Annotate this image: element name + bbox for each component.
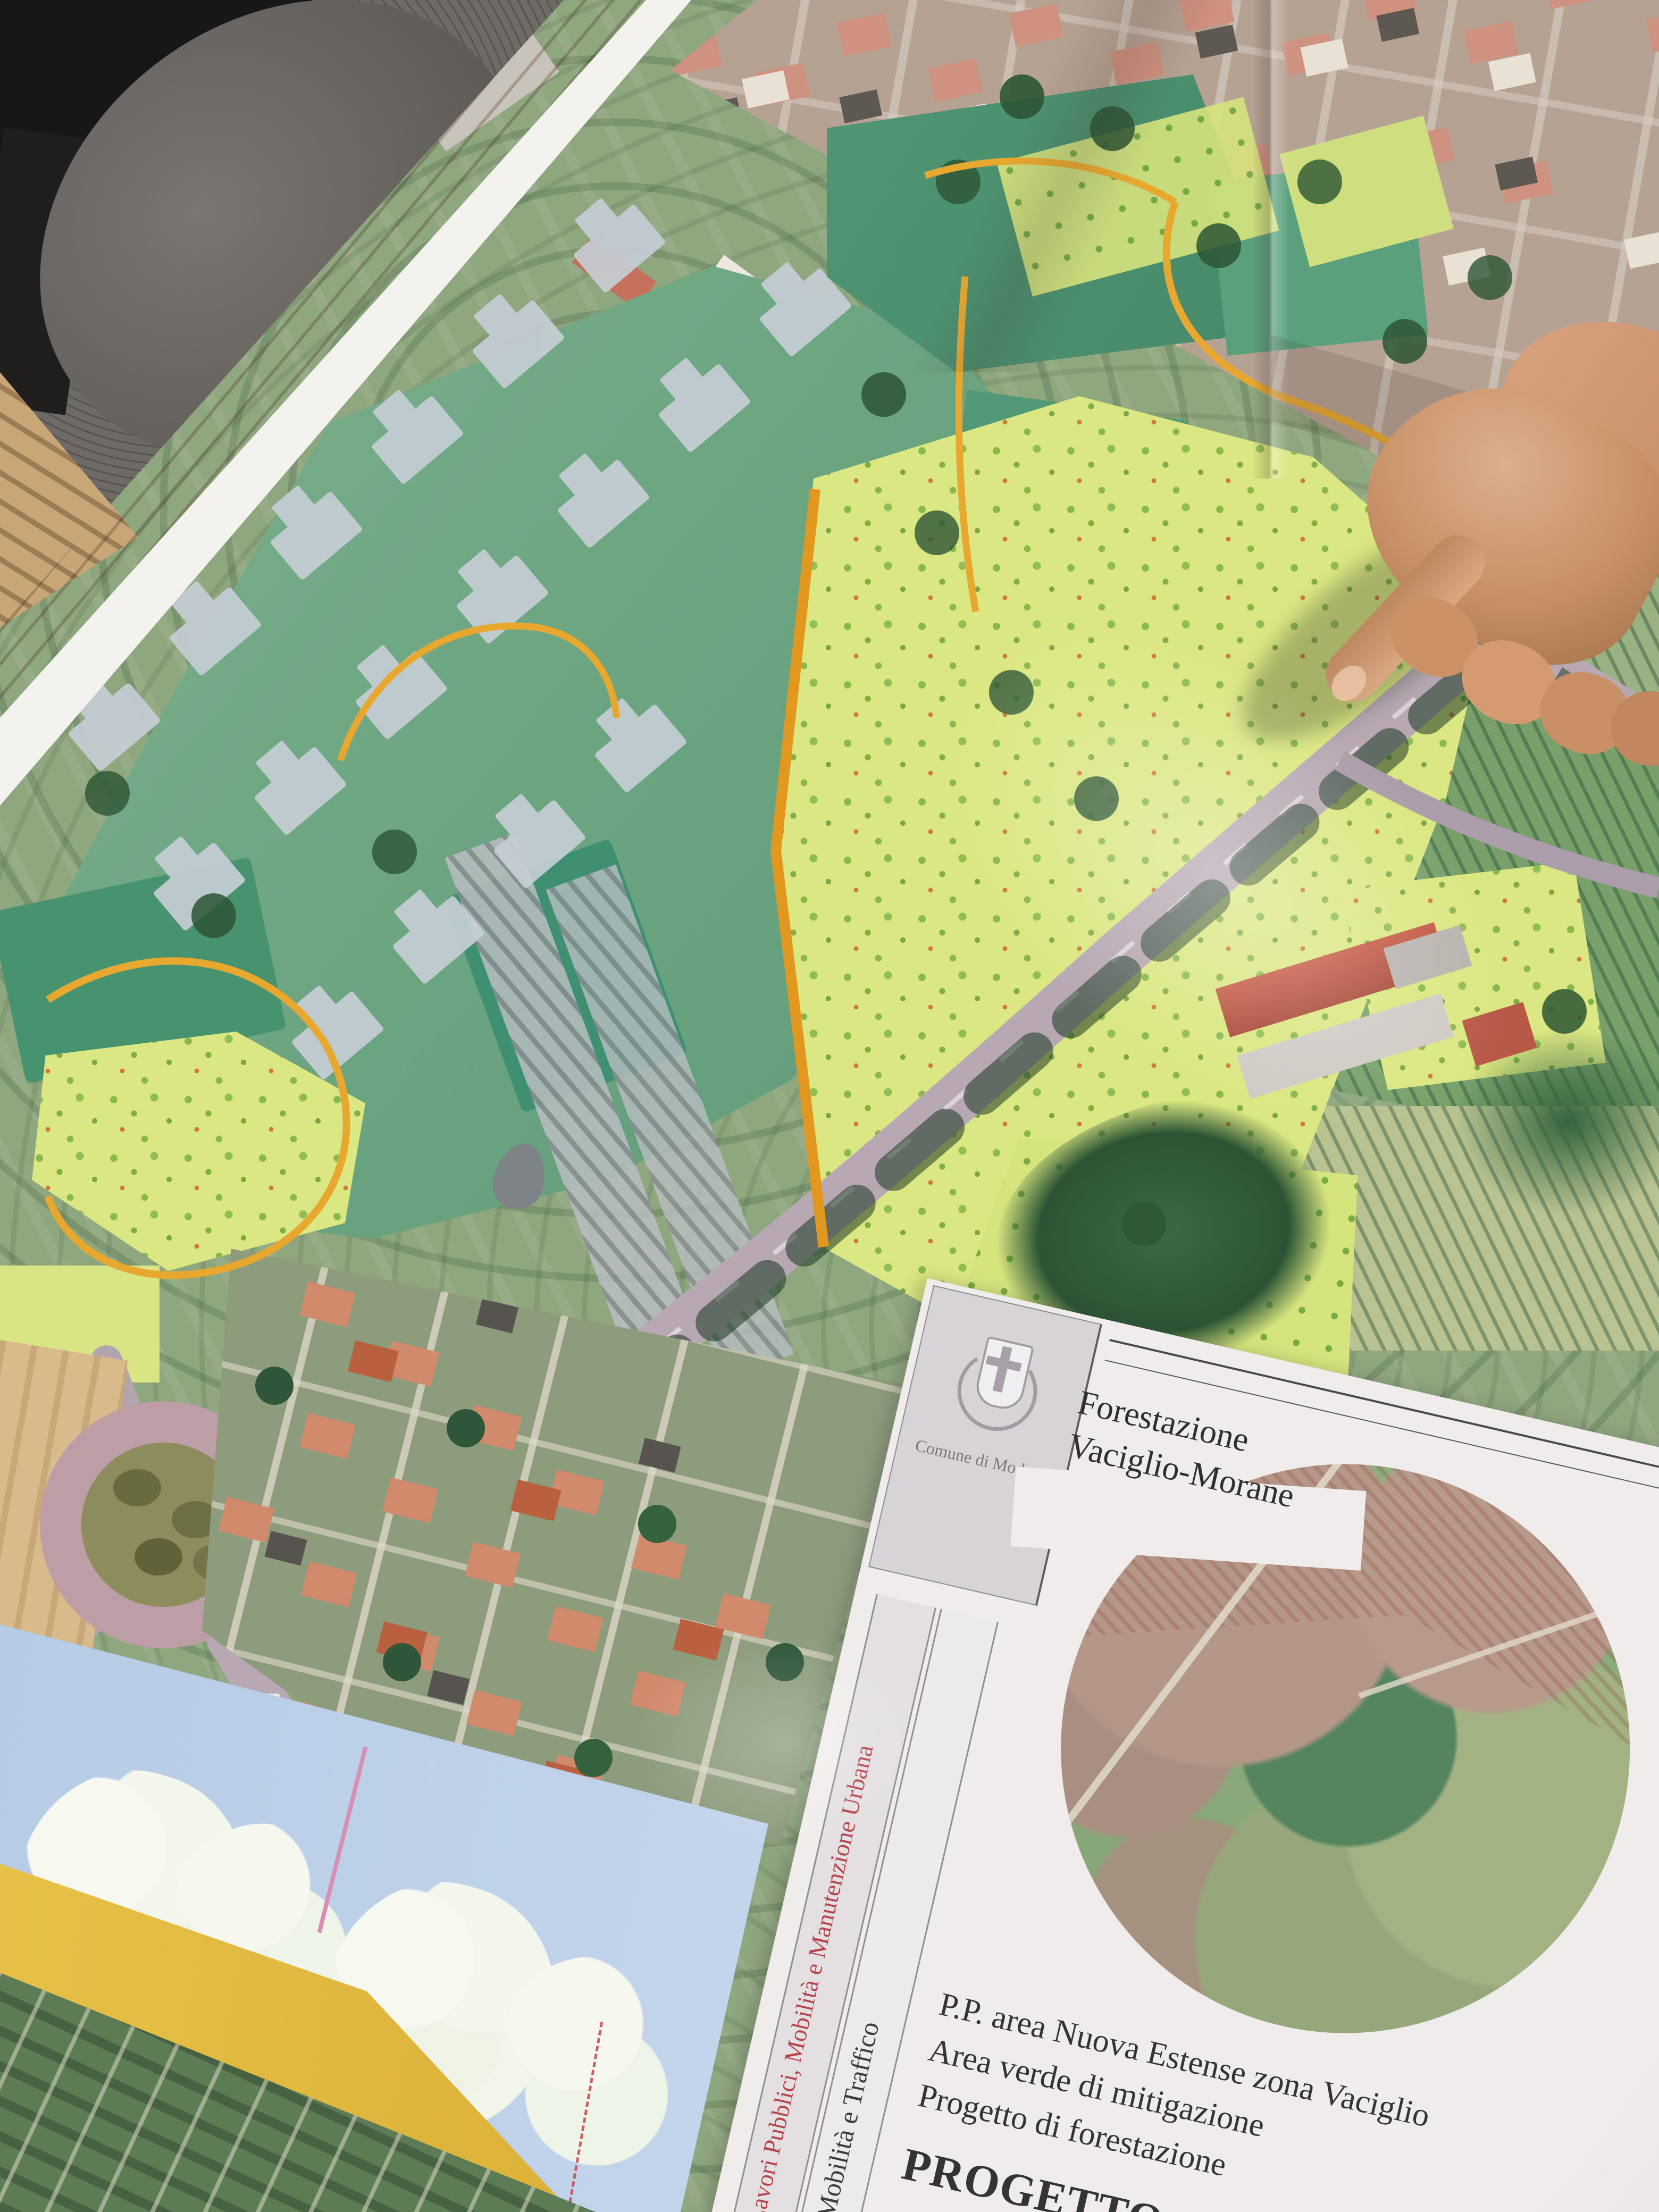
cross-section-sky bbox=[0, 1595, 798, 2212]
panel-title: Forestazione Vaciglio-Morane bbox=[1064, 1380, 1478, 1557]
sports-field bbox=[0, 857, 287, 1084]
plan-building bbox=[493, 799, 586, 889]
forestation-parcel bbox=[997, 97, 1279, 296]
farm-barn-grey bbox=[1237, 993, 1453, 1099]
apartment-block bbox=[572, 437, 720, 559]
corner-road-trees bbox=[1484, 633, 1659, 744]
trees-scatter bbox=[255, 1367, 294, 1405]
houses-scatter-salmon bbox=[299, 1281, 355, 1327]
light-sheen bbox=[703, 390, 1659, 1365]
chair-cushion bbox=[0, 0, 585, 552]
parking-strip bbox=[546, 865, 794, 1380]
inset-urban-speckle bbox=[1062, 1407, 1659, 1840]
green-field bbox=[1209, 160, 1428, 356]
green-field bbox=[939, 390, 1188, 621]
plan-building bbox=[759, 267, 852, 357]
roads-layer bbox=[0, 0, 1659, 2212]
yellow-path bbox=[48, 961, 347, 1275]
paper-margin-edge bbox=[0, 0, 718, 829]
yellow-path bbox=[1167, 202, 1526, 585]
light-sheen bbox=[585, 1595, 984, 1888]
farm-barn-red bbox=[1216, 922, 1449, 1037]
sidebar-strip-settore: Settore Lavori Pubblici, Mobilità e Manu… bbox=[714, 1594, 936, 2212]
forestation-parcel bbox=[1279, 116, 1453, 267]
section-marker-red-dashed bbox=[567, 2022, 603, 2210]
red-roof-house bbox=[520, 591, 602, 663]
road-tree-shadows bbox=[627, 596, 1569, 1393]
plan-building bbox=[355, 650, 448, 740]
main-road-path bbox=[255, 553, 1585, 1537]
side-road bbox=[1340, 760, 1659, 888]
residential-street bbox=[372, 1303, 611, 1702]
cross-section-tree bbox=[295, 1856, 583, 2159]
comune-di-modena-crest-icon bbox=[948, 1328, 1049, 1444]
plan-building bbox=[153, 842, 246, 932]
fold-crease-vertical bbox=[1252, 0, 1289, 479]
sidebar-servizio-text: Servizio Mobilità e Traffico bbox=[789, 2018, 885, 2212]
folded-finger-knuckle bbox=[1611, 691, 1659, 766]
sports-field bbox=[445, 839, 688, 1113]
wood-table-edge bbox=[0, 0, 691, 744]
subject-lines: P.P. area Nuova Estense zona Vaciglio Ar… bbox=[884, 1981, 1659, 2212]
fold-crease-soft bbox=[798, 0, 1329, 372]
plan-building bbox=[557, 459, 650, 549]
cross-section-ground bbox=[0, 1840, 596, 2212]
cross-section-tree bbox=[0, 1744, 274, 2047]
yellow-path bbox=[925, 161, 1175, 202]
red-roof-house bbox=[572, 235, 657, 309]
sidebar-strip-servizio: Servizio Mobilità e Traffico bbox=[778, 1609, 999, 2212]
forestation-parcel bbox=[1340, 861, 1606, 1090]
roundabout-island-shrubs bbox=[113, 1469, 161, 1506]
houses-scatter-rust bbox=[348, 1340, 399, 1382]
subject-line1: P.P. area Nuova Estense zona Vaciglio bbox=[935, 1981, 1659, 2206]
section-pink-line bbox=[317, 1746, 368, 1933]
roundabout bbox=[40, 1401, 287, 1648]
logo-box: Comune di Modena bbox=[868, 1285, 1102, 1606]
folded-finger-knuckle bbox=[1376, 582, 1492, 692]
corner-road bbox=[1468, 611, 1659, 728]
folded-finger-knuckle bbox=[1449, 626, 1570, 739]
photo-of-map-on-table: Comune di Modena Settore Lavori Pubblici… bbox=[0, 0, 1659, 2212]
crop-field bbox=[1319, 681, 1659, 1159]
yellow-path bbox=[959, 276, 976, 611]
forest-patch bbox=[1436, 1010, 1659, 1234]
fold-shadow-diagonal bbox=[0, 0, 1659, 638]
inset-road bbox=[1358, 1471, 1659, 1698]
index-finger bbox=[1315, 524, 1496, 713]
houses-scatter-light bbox=[742, 70, 790, 108]
folded-finger-knuckle bbox=[1529, 660, 1641, 766]
red-roof-house bbox=[371, 437, 475, 525]
panel-title-line2: Vaciglio-Morane bbox=[1064, 1423, 1468, 1557]
title-panel: Comune di Modena Settore Lavori Pubblici… bbox=[693, 1278, 1659, 2212]
plan-building bbox=[472, 299, 565, 389]
crest-cross-horizontal bbox=[986, 1355, 1022, 1371]
bare-soil-area bbox=[0, 1340, 133, 1686]
apartment-block bbox=[833, 87, 996, 222]
pond bbox=[487, 1138, 552, 1214]
panel-frame-line bbox=[1109, 1339, 1659, 1535]
cars-scatter bbox=[266, 1468, 285, 1477]
cross-section-tree bbox=[462, 1934, 713, 2203]
crop-field bbox=[1361, 495, 1659, 697]
approach-road bbox=[0, 1505, 122, 1537]
plan-building bbox=[392, 895, 485, 985]
office-chair bbox=[0, 0, 585, 638]
inset-road bbox=[1004, 1454, 1346, 1981]
apartment-block bbox=[700, 255, 853, 382]
plan-building bbox=[291, 991, 384, 1080]
hand-back bbox=[1323, 340, 1659, 703]
logo-caption: Comune di Modena bbox=[896, 1431, 1067, 1489]
aerial-top-urban bbox=[585, 0, 1659, 585]
apartment-block bbox=[636, 524, 779, 642]
plan-building bbox=[658, 363, 751, 453]
plan-building bbox=[456, 555, 549, 644]
plan-building bbox=[371, 395, 464, 485]
green-field bbox=[827, 74, 1258, 372]
plan-building bbox=[254, 746, 347, 836]
plan-overlay bbox=[0, 234, 1170, 1308]
grey-roof-block bbox=[419, 33, 559, 151]
approach-road bbox=[106, 1361, 160, 1521]
chair-frame-dark bbox=[0, 127, 104, 415]
trees-scatter bbox=[1000, 74, 1044, 119]
crest-cross-vertical bbox=[993, 1346, 1012, 1393]
parking-strip bbox=[445, 833, 693, 1348]
inset-photo-circle bbox=[1004, 1407, 1659, 2090]
approach-road bbox=[32, 1574, 133, 1670]
panel-title-line1: Forestazione bbox=[1074, 1380, 1478, 1514]
forestation-parcel bbox=[32, 1032, 372, 1271]
houses-scatter-dark bbox=[700, 97, 743, 131]
residential-street bbox=[276, 1627, 691, 1776]
subject-line3: Progetto di forestazione bbox=[914, 2072, 1659, 2212]
apartment-block bbox=[769, 350, 921, 477]
orchard-parcel bbox=[929, 1111, 1390, 1537]
houses-scatter-dark bbox=[476, 1298, 518, 1333]
cross-section-tree bbox=[132, 1800, 388, 2071]
forest-patch bbox=[979, 1048, 1578, 1452]
road-centerline bbox=[638, 553, 1585, 1361]
forestation-parcel-main bbox=[766, 383, 1510, 1404]
yellow-path bbox=[340, 626, 617, 760]
parking-lot bbox=[250, 598, 441, 763]
plan-building bbox=[573, 204, 666, 294]
red-roof-house bbox=[451, 514, 544, 593]
plan-building bbox=[270, 491, 363, 581]
farm-shed bbox=[1384, 925, 1472, 989]
hand-arm bbox=[1466, 289, 1659, 583]
crest-shield bbox=[973, 1336, 1034, 1413]
sidebar-settore-text: Settore Lavori Pubblici, Mobilità e Manu… bbox=[724, 1742, 879, 2212]
vignette-overlay bbox=[0, 0, 1659, 2212]
forestation-parcel bbox=[0, 1266, 160, 1382]
residential-area bbox=[202, 1239, 925, 2212]
doc-type-label: PROGETTO bbox=[896, 2131, 1659, 2212]
circle-bite bbox=[1010, 1467, 1366, 1571]
yellow-paths-layer bbox=[0, 0, 1659, 2212]
crop-field-light bbox=[1276, 1106, 1659, 1351]
plan-building bbox=[594, 703, 688, 793]
main-road-path bbox=[229, 1638, 468, 2212]
wood-floor bbox=[0, 351, 160, 649]
plan-building bbox=[169, 586, 262, 676]
farm-house-red bbox=[1462, 1002, 1537, 1066]
yellow-parcel-border bbox=[776, 489, 824, 1247]
finger-nail bbox=[1325, 659, 1373, 708]
houses-scatter-salmon bbox=[667, 32, 722, 76]
plan-building bbox=[68, 682, 161, 772]
residential-street bbox=[521, 1313, 670, 1702]
subject-line2: Area verde di mitigazione bbox=[924, 2026, 1659, 2212]
aerial-bottom-corner bbox=[0, 1967, 596, 2212]
crest-wreath bbox=[950, 1343, 1045, 1439]
panel-frame-line bbox=[1105, 1360, 1659, 1554]
partial-drawing-label: Plan bbox=[884, 2203, 1659, 2212]
chair-back-dark bbox=[0, 0, 327, 171]
apartment-block bbox=[764, 0, 922, 119]
hand-shadow bbox=[1211, 472, 1554, 777]
